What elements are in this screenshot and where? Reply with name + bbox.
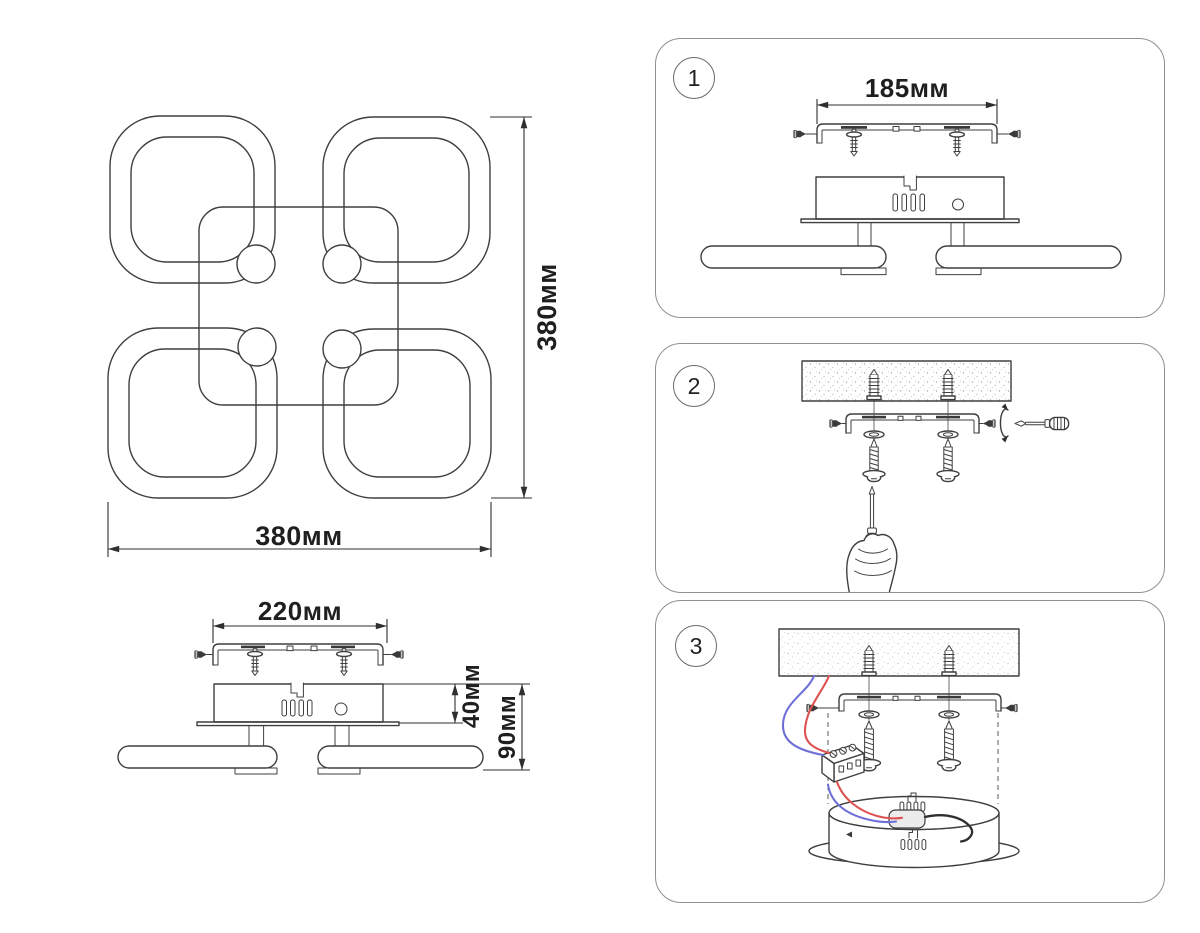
step-3-number: 3 (690, 633, 703, 660)
washer-icon (939, 711, 959, 718)
total-height-dimension: 90мм (483, 684, 530, 770)
bracket-screw-right-icon (979, 419, 996, 427)
center-frame (199, 207, 398, 405)
washer-icon (938, 431, 958, 438)
canopy (809, 793, 1019, 868)
joint-circles (237, 245, 361, 368)
bracket-screw-left-icon (194, 650, 213, 658)
alignment-guides (874, 400, 948, 438)
live-wire (805, 676, 829, 753)
fixing-screw-icon (847, 129, 862, 156)
step-3-panel: 3 (655, 600, 1165, 903)
step-2-illustration (656, 344, 1165, 593)
top-view-width-label: 380мм (255, 521, 343, 551)
washer-icon (864, 431, 884, 438)
side-view-total-height-label: 90мм (494, 695, 521, 759)
lamp-body (214, 683, 383, 722)
mounting-screw-icon (938, 721, 961, 771)
step-3-badge: 3 (675, 625, 717, 667)
step-2-panel: 2 (655, 343, 1165, 593)
bracket-width-label: 185мм (865, 73, 949, 103)
mounting-bracket (213, 644, 383, 665)
lamp-body (816, 176, 1004, 219)
side-view-width-label: 220мм (258, 596, 342, 626)
step-2-badge: 2 (673, 365, 715, 407)
fixing-screw-icon (337, 649, 352, 676)
arm-left (701, 246, 886, 275)
step-3-illustration (656, 601, 1165, 903)
top-view-height-label: 380мм (532, 263, 562, 351)
bracket-width-dimension: 220мм (213, 596, 387, 643)
arm-left (118, 746, 277, 774)
arm-right (318, 746, 483, 774)
step-1-badge: 1 (673, 57, 715, 99)
mounting-screw-icon (937, 439, 959, 482)
arm-stems (858, 223, 964, 246)
width-dimension: 380мм (108, 502, 491, 557)
fixing-screw-icon (248, 649, 263, 676)
mounting-bracket (846, 414, 979, 433)
top-view-drawing: 380мм 380мм (85, 108, 565, 578)
mounting-bracket (817, 124, 997, 143)
screwdriver-icon (1015, 417, 1069, 429)
mounting-bracket (839, 694, 1001, 711)
mounting-screw-icon (863, 439, 885, 482)
side-view-drawing: 220мм (115, 593, 555, 803)
hand-with-screwdriver (847, 487, 897, 594)
neutral-wire (783, 676, 823, 755)
ceiling (802, 361, 1011, 401)
bracket-screw-right-icon (383, 650, 404, 658)
washer-icon (859, 711, 879, 718)
side-view-body-height-label: 40мм (458, 664, 485, 728)
ceiling (779, 629, 1019, 676)
step-1-panel: 1 185мм (655, 38, 1165, 318)
step-1-number: 1 (688, 65, 701, 92)
base-plate (801, 219, 1019, 223)
bracket-screw-right-icon (997, 130, 1021, 138)
bracket-width-dimension: 185мм (817, 73, 997, 124)
instruction-sheet: 380мм 380мм (0, 0, 1200, 933)
rotation-arrow-icon (1000, 409, 1008, 437)
height-dimension: 380мм (490, 117, 562, 498)
bracket-screw-right-icon (1001, 704, 1018, 712)
step-2-number: 2 (688, 373, 701, 400)
fixing-screw-icon (950, 129, 965, 156)
bracket-screw-left-icon (793, 130, 817, 138)
step-1-illustration: 185мм (656, 39, 1165, 318)
arm-right (936, 246, 1121, 275)
bracket-screw-left-icon (829, 419, 846, 427)
base-plate (197, 722, 399, 726)
arm-stems (249, 726, 349, 746)
